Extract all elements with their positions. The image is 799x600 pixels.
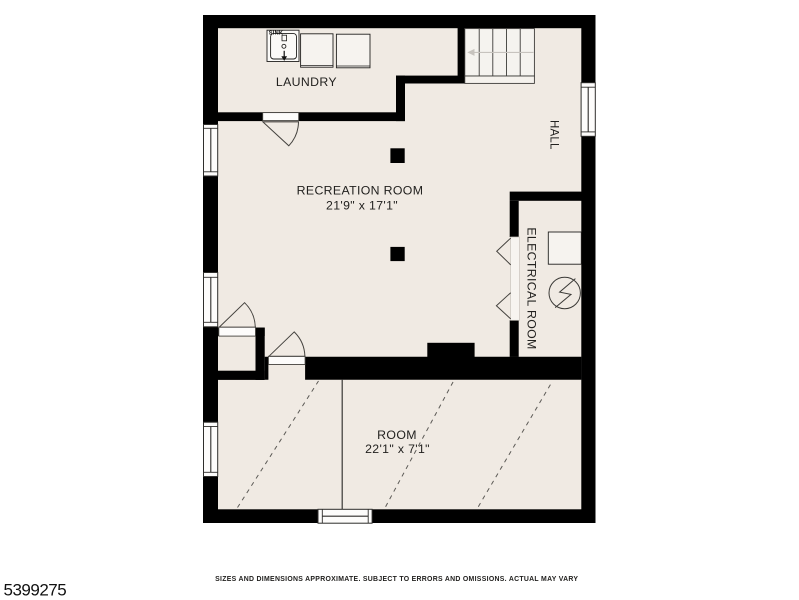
- svg-text:ROOM: ROOM: [377, 428, 417, 442]
- svg-text:SIZES AND DIMENSIONS APPROXIMA: SIZES AND DIMENSIONS APPROXIMATE. SUBJEC…: [215, 576, 578, 583]
- svg-text:LAUNDRY: LAUNDRY: [276, 75, 337, 89]
- svg-text:RECREATION ROOM: RECREATION ROOM: [297, 184, 424, 198]
- svg-text:ELECTRICAL ROOM: ELECTRICAL ROOM: [525, 227, 539, 349]
- svg-text:HALL: HALL: [548, 120, 560, 150]
- svg-text:5399275: 5399275: [4, 580, 67, 599]
- svg-text:21'9" x 17'1": 21'9" x 17'1": [326, 199, 398, 213]
- svg-text:SINK: SINK: [269, 31, 283, 37]
- svg-text:22'1" x 7'1": 22'1" x 7'1": [365, 442, 430, 456]
